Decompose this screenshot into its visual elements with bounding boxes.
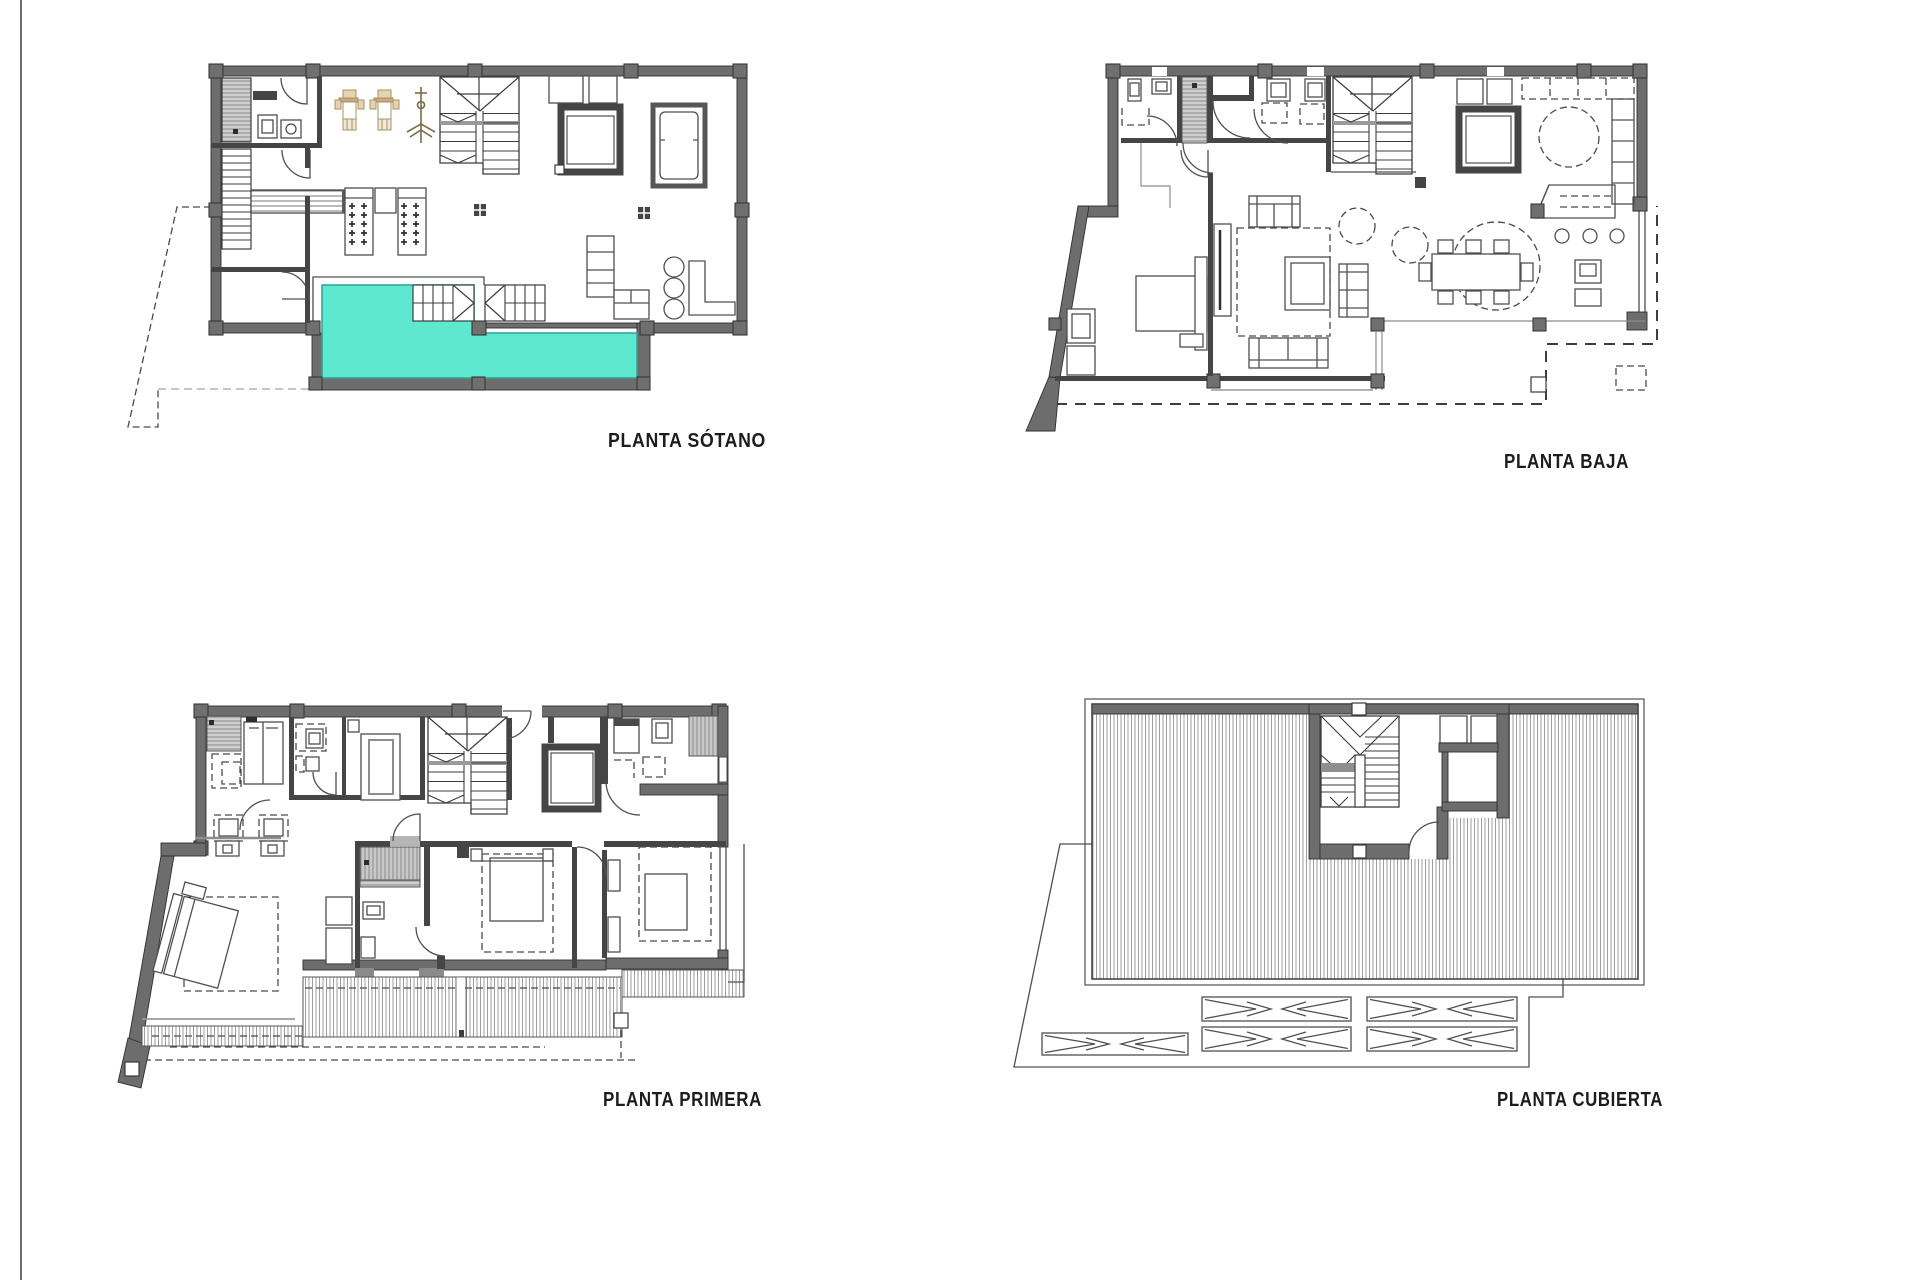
- svg-text:PLANTA CUBIERTA: PLANTA CUBIERTA: [1497, 1088, 1663, 1111]
- svg-text:PLANTA BAJA: PLANTA BAJA: [1504, 450, 1629, 473]
- svg-text:PLANTA SÓTANO: PLANTA SÓTANO: [608, 428, 766, 452]
- svg-text:PLANTA PRIMERA: PLANTA PRIMERA: [603, 1088, 762, 1111]
